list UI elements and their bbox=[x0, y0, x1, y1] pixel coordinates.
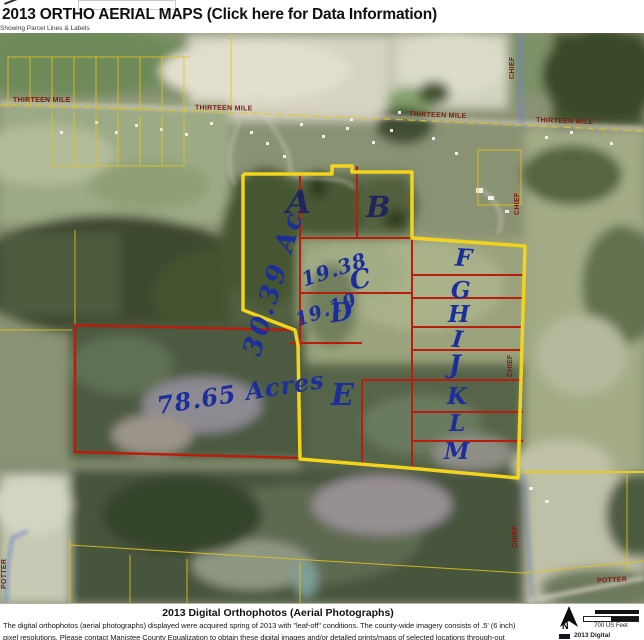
caption-line-2: pixel resolutions. Please contact Manist… bbox=[3, 633, 554, 640]
legend-item-label: 2013 Digital bbox=[574, 632, 610, 639]
north-label: N bbox=[562, 621, 569, 631]
map-legend: N 700 US Feet 2013 Digital bbox=[555, 604, 644, 640]
ortho-map-page: 2013 ORTHO AERIAL MAPS (Click here for D… bbox=[0, 0, 644, 640]
caption-bar: 2013 Digital Orthophotos (Aerial Photogr… bbox=[0, 603, 644, 640]
aerial-photo-canvas bbox=[0, 33, 644, 603]
scale-bar-bottom bbox=[583, 616, 639, 622]
scale-label: 700 US Feet bbox=[583, 623, 639, 629]
page-title-link[interactable]: 2013 ORTHO AERIAL MAPS (Click here for D… bbox=[2, 6, 437, 24]
scale-bar-top bbox=[595, 610, 639, 614]
map-subtitle: Showing Parcel Lines & Labels bbox=[0, 25, 90, 32]
caption-title: 2013 Digital Orthophotos (Aerial Photogr… bbox=[0, 607, 556, 619]
legend-color-chip bbox=[559, 634, 570, 639]
caption-line-1: The digital orthophotos (aerial photogra… bbox=[3, 621, 554, 630]
aerial-photo-map[interactable]: THIRTEEN MILE THIRTEEN MILE THIRTEEN MIL… bbox=[0, 33, 644, 603]
